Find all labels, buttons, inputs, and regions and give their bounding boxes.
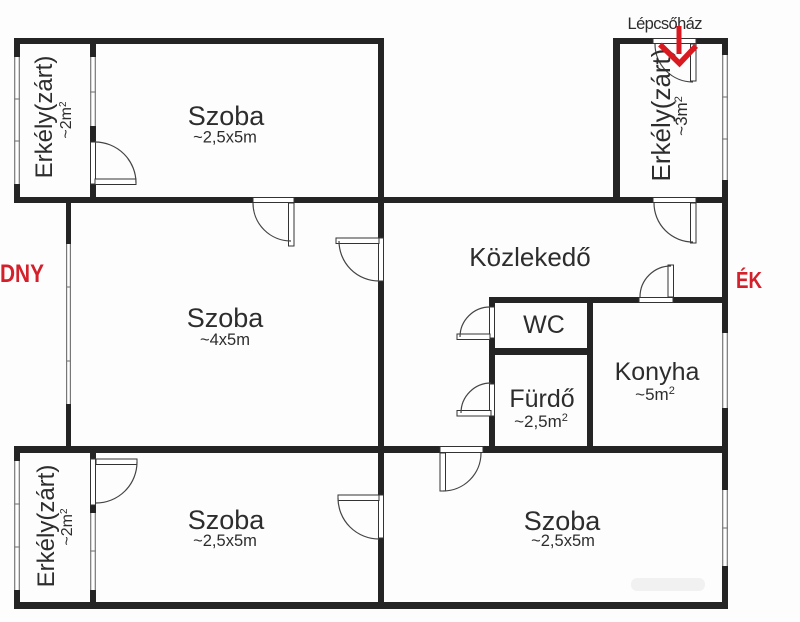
svg-text:Erkély(zárt): Erkély(zárt)	[31, 56, 58, 179]
svg-text:~2,5m2: ~2,5m2	[514, 412, 568, 431]
svg-text:DNY: DNY	[0, 260, 44, 288]
svg-text:~2,5x5m: ~2,5x5m	[193, 129, 257, 147]
svg-text:Szoba: Szoba	[188, 101, 266, 131]
svg-text:Lépcsőház: Lépcsőház	[628, 15, 703, 33]
svg-text:Szoba: Szoba	[187, 303, 265, 333]
svg-text:Erkély(zárt): Erkély(zárt)	[33, 465, 60, 588]
svg-text:~2,5x5m: ~2,5x5m	[531, 532, 595, 550]
svg-text:Konyha: Konyha	[615, 358, 700, 386]
svg-text:Közlekedő: Közlekedő	[469, 242, 590, 272]
svg-text:~4x5m: ~4x5m	[200, 331, 250, 349]
svg-text:Szoba: Szoba	[188, 505, 266, 535]
svg-text:Fürdő: Fürdő	[509, 385, 574, 413]
svg-text:~2,5x5m: ~2,5x5m	[193, 532, 257, 550]
svg-text:WC: WC	[523, 311, 565, 339]
svg-text:ÉK: ÉK	[736, 266, 762, 293]
